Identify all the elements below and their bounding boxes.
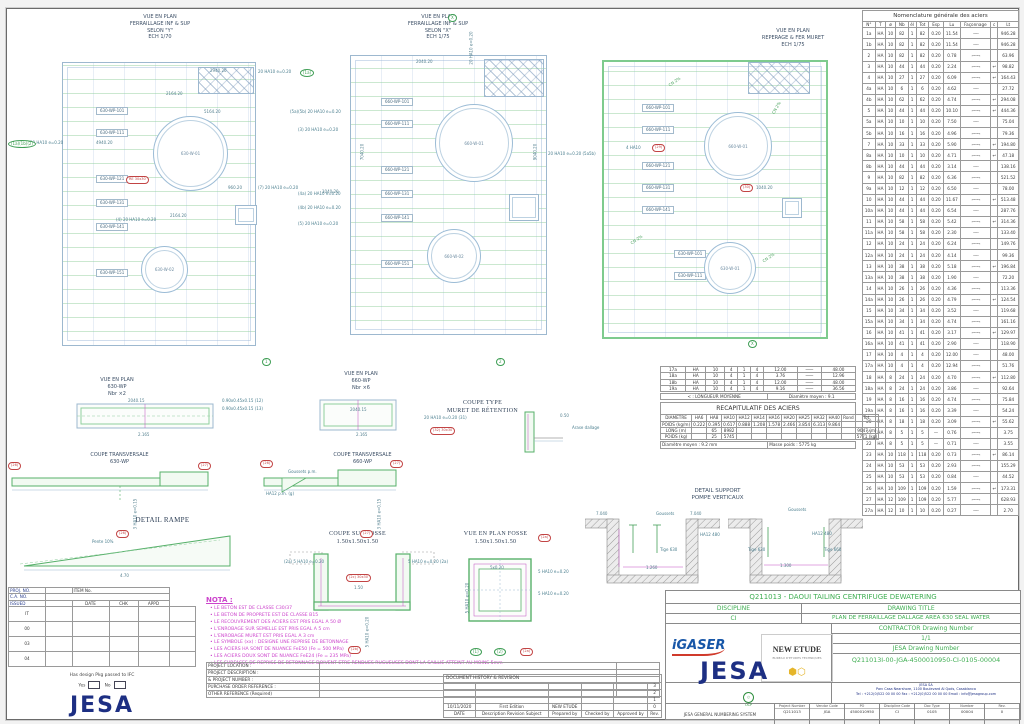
nomenclature-cell: 82 <box>916 28 929 39</box>
nota-item: L'ENROBAGE MURET EST PRIS EGAL A 3 cm <box>210 634 566 639</box>
nomenclature-cell: 10 <box>886 283 896 294</box>
nomenclature-cell: 1 <box>908 250 916 261</box>
ifc-choices: Yes No <box>8 681 196 689</box>
nomenclature-cell: 44 <box>895 205 908 216</box>
igaser-logo: iGASER <box>672 638 725 656</box>
title-line: ECH 1/75 <box>728 42 858 49</box>
tank-circle-label: 660-W-02 <box>444 254 463 259</box>
nomenclature-cell: HA <box>875 294 885 305</box>
nomenclature-cell: 0.20 <box>929 472 943 483</box>
numbering-fields: Project NumberQ211013Vendor CodeJGAPO450… <box>775 704 1020 724</box>
nomenclature-cell: 946.28 <box>998 39 1019 50</box>
rebar-label-box: 630-WP-121 <box>96 175 128 183</box>
detail-pompe-630-drawing <box>585 505 720 589</box>
nomenclature-cell <box>990 283 998 294</box>
rebar-label-box: 630-WP-101 <box>96 107 128 115</box>
nomenclature-cell <box>990 438 998 449</box>
recap-col-header: HA14 <box>752 415 767 421</box>
nomenclature-cell: 0.20 <box>929 28 943 39</box>
nomenclature-cell: HA <box>875 316 885 327</box>
nomenclature-cell: 1 <box>908 183 916 194</box>
nomenclature-cell: 1 <box>908 294 916 305</box>
nomenclature-cell: ⌐──¬ <box>961 139 991 150</box>
nomenclature-row: 8aHA10101100.204.71⌐──¬↩47.18 <box>863 150 1019 161</box>
nomenclature-cell: 10 <box>863 194 876 205</box>
nomenclature-row: 26HA1010911090.201.59⌐──¬↩173.31 <box>863 483 1019 494</box>
nomenclature-cell: ↩ <box>990 261 998 272</box>
nomenclature-cell: 10 <box>895 150 908 161</box>
nomenclature-cell: 129.97 <box>998 327 1019 338</box>
nomenclature-cell: 1 <box>908 372 916 383</box>
nomenclature-cell: 1 <box>908 483 916 494</box>
nomenclature-cell <box>990 183 998 194</box>
nomenclature-cell: 54.24 <box>998 405 1019 416</box>
nomenclature-cell: 1 <box>908 383 916 394</box>
mini-note-left: < : LONGUEUR MOYENNE <box>661 394 768 400</box>
nomenclature-cell: 1 <box>908 283 916 294</box>
nomenclature-cell: 1 <box>908 327 916 338</box>
recap-col-header: Rond <box>842 415 856 421</box>
contractor-number-value: 1/1 <box>832 634 1020 644</box>
view-title-plan-y: VUE EN PLAN FERRAILLAGE INF & SUP SELON … <box>100 14 220 41</box>
nomenclature-cell: HA <box>875 383 885 394</box>
nomenclature-cell: ─── <box>961 28 991 39</box>
nomenclature-cell: 16 <box>895 128 908 139</box>
history-cell <box>475 697 548 704</box>
nomenclature-cell: 44.52 <box>998 472 1019 483</box>
history-cell: Description Revision Subject <box>475 711 548 718</box>
nomenclature-cell: HA <box>875 28 885 39</box>
nomenclature-cell: 1 <box>908 28 916 39</box>
nomenclature-cell: 63.96 <box>998 50 1019 61</box>
nomenclature-row: 13HA10381380.205.18⌐──¬↩196.84 <box>863 261 1019 272</box>
nomenclature-table: N°TøNbélTotEspLuFaçonnagecLt 1aHA1082182… <box>862 21 1019 516</box>
numbering-field: Doc Type0105 <box>915 704 950 724</box>
nomenclature-cell: 1 <box>908 449 916 460</box>
rebar-label-box: 630-WP-111 <box>674 272 706 280</box>
coupe-660-drawing <box>262 462 398 506</box>
nomenclature-cell: 8 <box>886 383 896 394</box>
nomenclature-cell: ─── <box>961 438 991 449</box>
history-cell: Approved by <box>613 711 647 718</box>
nomenclature-cell: 1 <box>908 239 916 250</box>
issue-empty-cell <box>109 606 138 621</box>
plan-view-y: 630-WP-101630-WP-111630-WP-121630-WP-131… <box>62 62 256 346</box>
nomenclature-cell: 10 <box>886 216 896 227</box>
nomenclature-cell: HA <box>875 483 885 494</box>
issue-row: IT <box>9 606 196 621</box>
nota-item: LE BETON EST DE CLASSE C30/37 <box>210 606 566 611</box>
nomenclature-cell: 26 <box>895 294 908 305</box>
nomenclature-cell: ⌐──¬ <box>961 316 991 327</box>
nomenclature-cell: ⌐──¬ <box>961 239 991 250</box>
nomenclature-cell: 0.20 <box>929 105 943 116</box>
nomenclature-cell: 78.00 <box>998 183 1019 194</box>
nota-item: LES ACIERS HA SONT DE NUANCE FeE50 (Fe =… <box>210 647 566 652</box>
numbering-field-value: JGA <box>810 709 844 724</box>
nomenclature-cell <box>990 117 998 128</box>
nomenclature-cell: 444.36 <box>998 105 1019 116</box>
nomenclature-cell: ↩ <box>990 150 998 161</box>
recap-cell <box>752 434 767 440</box>
issue-rev-cell: 00 <box>9 621 46 636</box>
nomenclature-cell: 0.78 <box>943 50 960 61</box>
nomenclature-cell: 6 <box>895 83 908 94</box>
nomenclature-row: 4bHA10621620.204.74⌐──¬↩294.08 <box>863 94 1019 105</box>
nomenclature-cell: HA <box>875 239 885 250</box>
small-pit-square <box>235 205 257 225</box>
nomenclature-cell: 6.09 <box>943 72 960 83</box>
nomenclature-cell: ⌐──¬ <box>961 361 991 372</box>
recap-col-header: HA25 <box>797 415 812 421</box>
nomenclature-cell: HA <box>875 128 885 139</box>
recap-col-header: HA16 <box>767 415 782 421</box>
nomenclature-cell: HA <box>875 94 885 105</box>
title-line: ECH 1/70 <box>100 34 220 41</box>
numbering-field-value: 4500010950 <box>845 709 879 724</box>
recap-cell: 5771 (kg) <box>855 434 878 440</box>
ocp-cell: ۞ OCP <box>666 683 832 703</box>
nomenclature-cell: 41 <box>895 338 908 349</box>
tank-circle: 660-W-02 <box>427 229 481 283</box>
history-title: DOCUMENT HISTORY & REVISION <box>443 674 662 682</box>
nomenclature-row: 9aHA10121120.206.50───78.00 <box>863 183 1019 194</box>
mini-note-row: < : LONGUEUR MOYENNE Diamètre moyen : 9.… <box>660 393 856 400</box>
nomenclature-cell: 9 <box>863 172 876 183</box>
nomenclature-cell: 10 <box>886 172 896 183</box>
nomenclature-row: 5bHA10161160.204.96⌐──¬79.36 <box>863 128 1019 139</box>
history-cell: Prepared by <box>548 711 581 718</box>
discipline-label: DISCIPLINE <box>666 604 802 613</box>
nomenclature-cell: 19 <box>863 394 876 405</box>
nomenclature-cell: ─── <box>961 305 991 316</box>
history-cell <box>581 697 613 704</box>
nomenclature-cell: 10 <box>886 449 896 460</box>
title-line: 1.50x1.50x1.50 <box>300 539 415 547</box>
title-line: COUPE SUR FOSSE <box>300 531 415 539</box>
nomenclature-row: 23HA1011811180.200.73⌐──¬↩86.14 <box>863 449 1019 460</box>
nomenclature-cell: 41 <box>916 338 929 349</box>
issue-empty-cell <box>109 636 138 651</box>
nomenclature-cell: 3 <box>863 61 876 72</box>
nomenclature-cell: 14a <box>863 294 876 305</box>
nomenclature-cell: 8 <box>886 438 896 449</box>
nomenclature-cell: 0.20 <box>929 327 943 338</box>
nomenclature-row: 3HA10441440.202.24⌐──¬↩98.82 <box>863 61 1019 72</box>
nomenclature-cell: 13 <box>863 261 876 272</box>
nomenclature-cell: 113.36 <box>998 283 1019 294</box>
nomenclature-cell: 34 <box>916 316 929 327</box>
title-line: 1.50x1.50x1.50 <box>438 539 553 547</box>
nomenclature-cell: 24 <box>895 250 908 261</box>
nomenclature-cell: 1 <box>908 338 916 349</box>
mini-cell: HA <box>685 385 705 391</box>
nomenclature-cell: 7.50 <box>943 117 960 128</box>
history-cell <box>581 690 613 697</box>
nomenclature-cell: 82 <box>895 172 908 183</box>
project-info-row: PROJECT LOCATION : <box>207 663 660 670</box>
nomenclature-row: 11aHA10581580.202.30───133.40 <box>863 227 1019 238</box>
recap-cell: 0.395 <box>707 421 722 427</box>
issue-empty-cell <box>72 621 109 636</box>
nomenclature-row: 11HA10581580.205.42⌐──¬↩314.36 <box>863 216 1019 227</box>
nomenclature-cell: 10 <box>886 305 896 316</box>
nomenclature-cell: 0.20 <box>929 316 943 327</box>
nomenclature-cell: 4.74 <box>943 394 960 405</box>
nomenclature-cell: ↩ <box>990 139 998 150</box>
nomenclature-cell: ─── <box>961 472 991 483</box>
nomenclature-cell <box>990 349 998 360</box>
nomenclature-cell: 10 <box>886 239 896 250</box>
nomenclature-cell: 12 <box>886 505 896 516</box>
issue-empty-cell <box>169 606 196 621</box>
nomenclature-cell: 4 <box>916 349 929 360</box>
nomenclature-cell: 0.20 <box>929 383 943 394</box>
recap-panel: 17aHA1041412.00───48.0018aHA104143.76───… <box>660 366 856 449</box>
nomenclature-row: 12HA10241240.206.24⌐──¬149.76 <box>863 239 1019 250</box>
nomenclature-cell: 1a <box>863 28 876 39</box>
nomenclature-cell: 15 <box>863 305 876 316</box>
nomenclature-cell: HA <box>875 494 885 505</box>
nomenclature-cell: 4b <box>863 94 876 105</box>
nomenclature-cell: 10 <box>886 50 896 61</box>
tank-circle: 630-W-01 <box>704 242 756 294</box>
nomenclature-cell: 26 <box>863 483 876 494</box>
nomenclature-cell: 62 <box>895 94 908 105</box>
nomenclature-cell: ⌐──¬ <box>961 194 991 205</box>
recap-cell: 0.617 <box>722 421 737 427</box>
nomenclature-cell: 14 <box>863 283 876 294</box>
nomenclature-cell: ⌐──¬ <box>961 150 991 161</box>
plan-view-muret: 660-WP-101660-WP-111660-WP-121660-WP-131… <box>602 60 828 339</box>
recap-cell: 8982 <box>722 427 737 433</box>
issue-empty-cell <box>109 621 138 636</box>
nomenclature-cell <box>990 405 998 416</box>
ramp-hatch <box>198 67 254 94</box>
nomenclature-cell: 0.84 <box>943 472 960 483</box>
nomenclature-cell: 53 <box>916 460 929 471</box>
recap-footer: Diamètre moyen : 9.2 mm Masse poids : 57… <box>660 441 856 448</box>
nomenclature-cell: ⌐──¬ <box>961 72 991 83</box>
nomenclature-cell: 62 <box>916 94 929 105</box>
nomenclature-cell: 0.20 <box>929 150 943 161</box>
nomenclature-cell: 1 <box>908 50 916 61</box>
nomenclature-cell: 6.24 <box>943 239 960 250</box>
nomenclature-cell: 5.42 <box>943 216 960 227</box>
nomenclature-cell: 18 <box>863 372 876 383</box>
nomenclature-cell: 314.36 <box>998 216 1019 227</box>
nomenclature-row: 4HA10271270.206.09⌐──¬↩164.43 <box>863 72 1019 83</box>
nomenclature-row: 10HA10441440.2011.67⌐──¬↩513.48 <box>863 194 1019 205</box>
nomenclature-cell: 0.20 <box>929 94 943 105</box>
nomenclature-cell: 16 <box>895 405 908 416</box>
project-info-label: PURCHASE ORDER REFERENCE : <box>207 684 320 691</box>
nomenclature-cell: 0.20 <box>929 117 943 128</box>
nomenclature-cell: 0.20 <box>929 294 943 305</box>
recap-cell <box>692 434 707 440</box>
nomenclature-cell: HA <box>875 338 885 349</box>
nomenclature-cell: 0.20 <box>929 161 943 172</box>
nomenclature-cell: 5b <box>863 128 876 139</box>
nomenclature-cell: HA <box>875 61 885 72</box>
new-etude-emblem-icon: ⬢⬡ <box>788 667 805 678</box>
nomenclature-cell: 44 <box>916 161 929 172</box>
nomenclature-cell: 1 <box>908 83 916 94</box>
nomenclature-cell <box>990 83 998 94</box>
nomenclature-cell: 10 <box>886 361 896 372</box>
title-line: ECH 1/75 <box>378 34 498 41</box>
nomenclature-cell: 0.20 <box>929 194 943 205</box>
title-line: Nbr ×6 <box>306 385 416 392</box>
nomenclature-cell: ⌐──¬ <box>961 327 991 338</box>
nomenclature-cell: 294.08 <box>998 94 1019 105</box>
title-line: POMPE VERTICAUX <box>660 495 775 502</box>
nomenclature-cell: 12 <box>886 494 896 505</box>
yes-label: Yes <box>78 683 85 688</box>
nomenclature-cell: HA <box>875 460 885 471</box>
nomenclature-cell: 3.39 <box>943 405 960 416</box>
nomenclature-cell: 10a <box>863 205 876 216</box>
nomenclature-cell: ─── <box>961 227 991 238</box>
nomenclature-cell: 4 <box>895 361 908 372</box>
nomenclature-cell: 0.20 <box>929 405 943 416</box>
nomenclature-cell <box>990 161 998 172</box>
small-pit-square <box>509 194 539 221</box>
nomenclature-cell: 82 <box>895 50 908 61</box>
nomenclature-cell: ─── <box>961 205 991 216</box>
nomenclature-cell: 41 <box>916 327 929 338</box>
nomenclature-cell: 27 <box>895 72 908 83</box>
nomenclature-cell: 23 <box>863 449 876 460</box>
nomenclature-cell: 5.18 <box>943 261 960 272</box>
nomenclature-cell: 5 <box>863 105 876 116</box>
recap-cell <box>797 434 812 440</box>
nomenclature-cell: 1 <box>908 128 916 139</box>
rebar-label-box: 660-WP-101 <box>642 104 674 112</box>
history-cell: 10/11/2020 <box>444 704 476 711</box>
rebar-label-box: 660-WP-111 <box>642 126 674 134</box>
nomenclature-cell: 1 <box>908 39 916 50</box>
numbering-field: Number00004 <box>950 704 985 724</box>
nomenclature-cell: 119.68 <box>998 305 1019 316</box>
nomenclature-cell: 0.20 <box>929 416 943 427</box>
recap-cell: POIDS (kg/m) <box>661 421 692 427</box>
title-line: REPERAGE & FER MURET <box>728 35 858 42</box>
view-title-plan-x: VUE EN PLAN FERRAILLAGE INF & SUP SELON … <box>378 14 498 41</box>
nomenclature-cell: 1 <box>908 216 916 227</box>
nomenclature-cell: ─── <box>961 250 991 261</box>
numbering-field-value: 0 <box>985 709 1019 724</box>
nomenclature-cell: 6.54 <box>943 205 960 216</box>
nomenclature-cell: ─── <box>961 272 991 283</box>
nomenclature-cell: 55.62 <box>998 416 1019 427</box>
nomenclature-cell: 10 <box>886 105 896 116</box>
title-line: VUE EN PLAN FOSSE <box>438 531 553 539</box>
nomenclature-cell: 1 <box>908 94 916 105</box>
tank-circle: 630-W-01 <box>153 116 228 191</box>
nomenclature-row: 1aHA10821820.2011.54───946.28 <box>863 28 1019 39</box>
nomenclature-cell: 44 <box>895 194 908 205</box>
nota-item: L'ENROBAGE SUR SEMELLE EST PRIS EGAL A 5… <box>210 627 566 632</box>
recap-cell: 6.313 <box>812 421 827 427</box>
history-block: DOCUMENT HISTORY & REVISION 32110/11/202… <box>443 674 662 718</box>
numbering-field: Vendor CodeJGA <box>810 704 845 724</box>
nomenclature-cell: 1 <box>908 460 916 471</box>
nomenclature-cell: HA <box>875 372 885 383</box>
nomenclature-cell: 4 <box>916 361 929 372</box>
title-line: FERRAILLAGE INF & SUP <box>100 21 220 28</box>
history-cell <box>613 683 647 690</box>
history-cell: 1 <box>648 697 662 704</box>
nomenclature-cell: 1 <box>908 316 916 327</box>
nomenclature-cell: 109 <box>895 494 908 505</box>
nomenclature-cell: 5 <box>916 427 929 438</box>
nomenclature-cell: 24 <box>916 239 929 250</box>
nomenclature-row: 18HA8241240.204.70⌐──¬↩112.80 <box>863 372 1019 383</box>
nomenclature-cell: ↩ <box>990 94 998 105</box>
nomenclature-cell: 38 <box>916 272 929 283</box>
numbering-field-value: Q211013 <box>775 709 809 724</box>
project-info-label: PROJECT LOCATION : <box>207 663 320 670</box>
nomenclature-cell: 10.10 <box>943 105 960 116</box>
nomenclature-cell: ⌐──¬ <box>961 283 991 294</box>
view-title-coupe-fosse: COUPE SUR FOSSE 1.50x1.50x1.50 <box>300 531 415 547</box>
jesa-logo-main: JESA <box>700 657 769 685</box>
nomenclature-cell: 0.76 <box>943 427 960 438</box>
nomenclature-cell: 0.20 <box>929 39 943 50</box>
nomenclature-cell: 82 <box>895 28 908 39</box>
nomenclature-cell: 82 <box>916 39 929 50</box>
nota-item: LE BETON DE PROPRETE EST DE CLASSE B15 <box>210 613 566 618</box>
title-line: VUE EN PLAN <box>100 14 220 21</box>
nomenclature-cell <box>990 50 998 61</box>
nomenclature-cell: 0.20 <box>929 50 943 61</box>
mini-cell: ─── <box>797 385 821 391</box>
nomenclature-cell: 48.00 <box>998 349 1019 360</box>
nomenclature-cell: 27 <box>863 494 876 505</box>
nomenclature-cell: 0.73 <box>943 449 960 460</box>
issue-empty-cell <box>46 606 73 621</box>
nomenclature-cell: 0.20 <box>929 239 943 250</box>
nomenclature-cell: 1 <box>908 139 916 150</box>
nomenclature-cell: 25 <box>863 472 876 483</box>
nomenclature-cell: 1 <box>908 349 916 360</box>
nomenclature-cell: 10 <box>886 139 896 150</box>
rebar-label-box: 660-WP-131 <box>381 190 413 198</box>
issue-row: 03 <box>9 636 196 651</box>
issue-row: 00 <box>9 621 196 636</box>
recap-cell: 1.208 <box>752 421 767 427</box>
view-title-plan-muret: VUE EN PLAN REPERAGE & FER MURET ECH 1/7… <box>728 28 858 48</box>
tank-circle-label: 630-W-01 <box>181 151 200 156</box>
issue-empty-cell <box>169 621 196 636</box>
nomenclature-cell: 10 <box>886 61 896 72</box>
nomenclature-cell <box>990 239 998 250</box>
nomenclature-cell: 138.16 <box>998 161 1019 172</box>
nomenclature-cell: 4a <box>863 83 876 94</box>
nomenclature-cell <box>990 272 998 283</box>
recap-cell <box>767 434 782 440</box>
nomenclature-cell: 10 <box>886 349 896 360</box>
nomenclature-row: 13aHA10381380.201.90───72.20 <box>863 272 1019 283</box>
nomenclature-cell: 24 <box>916 250 929 261</box>
nomenclature-cell: HA <box>875 394 885 405</box>
nomenclature-cell: 11.67 <box>943 194 960 205</box>
history-cell <box>444 690 476 697</box>
nomenclature-cell: HA <box>875 349 885 360</box>
title-line: VUE EN PLAN <box>306 371 416 378</box>
nomenclature-cell: 173.31 <box>998 483 1019 494</box>
